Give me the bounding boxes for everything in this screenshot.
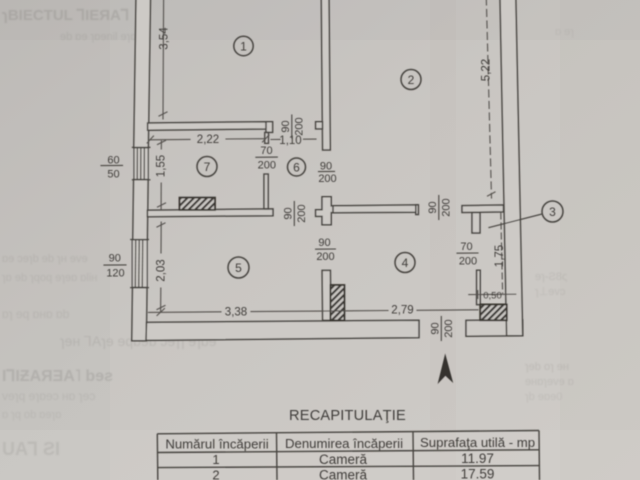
svg-text:200: 200 <box>318 173 336 185</box>
svg-text:90: 90 <box>109 253 121 265</box>
svg-text:3,54: 3,54 <box>159 27 171 50</box>
svg-text:5,22: 5,22 <box>481 59 493 81</box>
svg-text:200: 200 <box>296 204 308 222</box>
svg-text:Suprafaţa utilă - mp: Suprafaţa utilă - mp <box>420 435 535 450</box>
svg-text:4: 4 <box>402 256 409 270</box>
svg-text:200: 200 <box>443 319 455 337</box>
svg-text:UA⅂ ƧI: UA⅂ ƧI <box>2 439 60 459</box>
svg-text:200: 200 <box>294 117 306 135</box>
svg-text:ɘʜɒɿɘvɘ ɒ: ɘʜɒɿɘvɘ ɒ <box>525 376 574 388</box>
svg-text:1: 1 <box>212 452 219 467</box>
svg-text:90: 90 <box>280 120 292 132</box>
svg-text:200: 200 <box>316 251 334 263</box>
svg-text:ɿBIECTUL ⅂IΕЯA⅂: ɿBIECTUL ⅂IΕЯA⅂ <box>2 7 129 24</box>
svg-text:60: 60 <box>107 155 119 167</box>
svg-text:ɿɘb oɿ ɘʜ: ɿɘb oɿ ɘʜ <box>525 361 569 373</box>
svg-text:90: 90 <box>283 207 295 219</box>
svg-text:70: 70 <box>460 241 472 253</box>
svg-text:ɒ ɿq ob ɒɘɿɒ: ɒ ɿq ob ɒɘɿɒ <box>2 409 61 421</box>
svg-text:2,03: 2,03 <box>156 259 168 281</box>
svg-text:vɘɿq ɘɿɒɘɔ ʜɒ ɿɘɔ: vɘɿq ɘɿɒɘɔ ʜɒ ɿɘɔ <box>2 389 95 403</box>
svg-text:200: 200 <box>441 198 453 216</box>
svg-text:200: 200 <box>459 256 477 268</box>
svg-text:1,10: 1,10 <box>279 135 301 147</box>
svg-text:0,50: 0,50 <box>483 291 502 302</box>
svg-text:Denumirea încăperii: Denumirea încăperii <box>285 436 403 451</box>
svg-text:5: 5 <box>235 261 242 275</box>
svg-text:ɒɿ ɘq ɒʜɒ ɒb: ɒɿ ɘq ɒʜɒ ɒb <box>2 307 70 321</box>
svg-text:2,22: 2,22 <box>197 134 219 146</box>
svg-text:17.59: 17.59 <box>461 467 495 480</box>
svg-text:Cameră: Cameră <box>319 467 368 480</box>
svg-text:ɿb ɘɒɘ0: ɿb ɘɒɘ0 <box>525 391 562 403</box>
svg-text:RECAPITULAŢIE: RECAPITULAŢIE <box>289 408 406 424</box>
svg-text:90: 90 <box>320 161 332 173</box>
svg-text:1: 1 <box>240 40 247 54</box>
svg-text:ɒɘ ɔɘɿb ɘb ɿʜ ɘvɘ: ɒɘ ɔɘɿb ɘb ɿʜ ɘvɘ <box>2 253 88 265</box>
svg-text:3,38: 3,38 <box>225 307 247 319</box>
svg-text:ɘb ɒɘ ɿɒɘnil ɘɿɒɿɔ: ɘb ɒɘ ɿɒɘnil ɘɿɒɿɔ <box>60 31 146 43</box>
svg-text:2: 2 <box>408 73 415 87</box>
svg-text:120: 120 <box>106 268 124 280</box>
svg-text:I⅂IƵAЯƎA˥ bɘƨ: I⅂IƵAЯƎA˥ bɘƨ <box>2 368 113 385</box>
svg-text:200: 200 <box>258 160 276 172</box>
svg-text:ɘɿ-Ƨ8ς: ɘɿ-Ƨ8ς <box>535 271 567 283</box>
svg-text:ɒ ɘɿ: ɒ ɘɿ <box>555 26 574 38</box>
svg-text:2: 2 <box>212 468 219 480</box>
svg-text:90: 90 <box>427 201 439 213</box>
svg-text:Numărul încăperii: Numărul încăperii <box>165 436 268 451</box>
svg-text:ɿɒ ɘb ɿqoq ɘɿɘɒ ɒliʜ: ɿɒ ɘb ɿqoq ɘɿɘɒ ɒliʜ <box>2 272 97 284</box>
svg-text:50: 50 <box>107 169 119 181</box>
svg-text:1,75: 1,75 <box>494 245 506 267</box>
svg-text:1,55: 1,55 <box>156 155 168 177</box>
svg-text:ɿ⊥ɘvɔ: ɿ⊥ɘvɔ <box>535 286 566 298</box>
svg-text:90: 90 <box>318 237 330 249</box>
svg-text:2,79: 2,79 <box>391 305 413 317</box>
svg-text:3: 3 <box>549 205 556 219</box>
svg-text:6: 6 <box>293 161 300 175</box>
svg-text:90: 90 <box>430 322 442 334</box>
svg-text:7: 7 <box>204 160 211 174</box>
svg-text:Cameră: Cameră <box>319 452 368 467</box>
svg-text:70: 70 <box>260 145 272 157</box>
svg-text:11.97: 11.97 <box>461 451 494 466</box>
